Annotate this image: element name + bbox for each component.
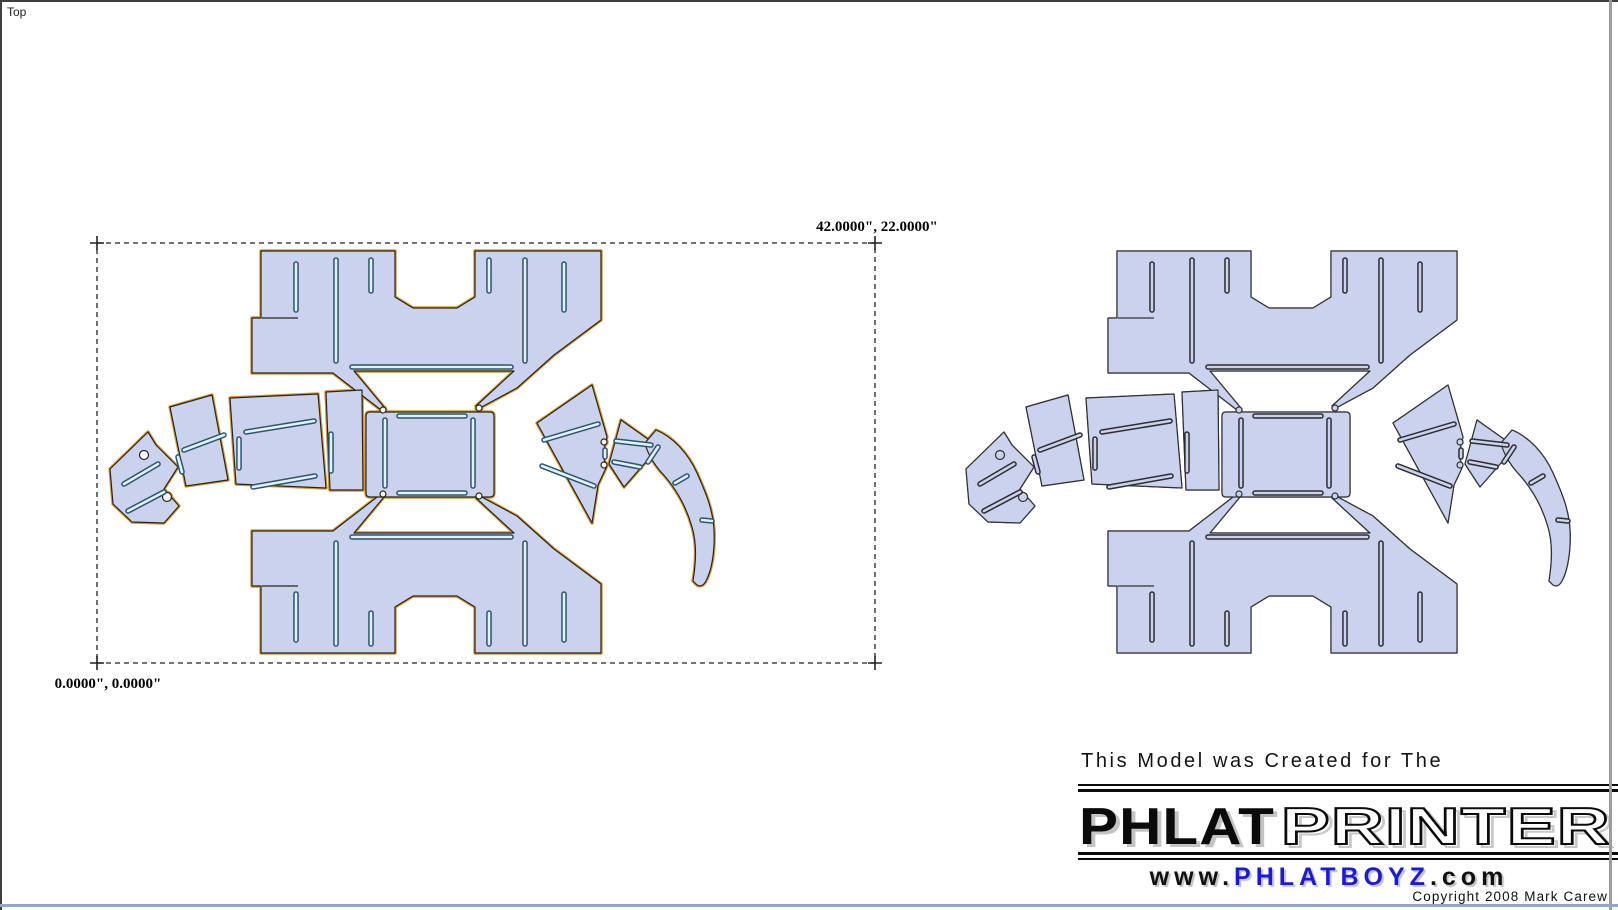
selection-corner-marker — [868, 236, 882, 250]
selection-corner-marker — [90, 656, 104, 670]
viewport: Top — [0, 0, 1618, 910]
frame-edge-bottom — [0, 904, 1618, 907]
model-left-faces — [110, 251, 714, 653]
model-copy-right[interactable] — [966, 251, 1570, 653]
frame-edge-right — [1609, 0, 1612, 910]
selection-corner-marker — [868, 656, 882, 670]
frame-edge-left — [0, 0, 2, 910]
drawing-area: 42.0000", 22.0000" 0.0000", 0.0000" — [0, 0, 1618, 910]
model-copy-left[interactable] — [110, 251, 714, 653]
model-right-faces — [966, 251, 1570, 653]
selection-corner-marker — [90, 236, 104, 250]
selection-origin-label: 0.0000", 0.0000" — [55, 676, 162, 692]
frame-edge-top — [0, 0, 1618, 2]
selection-extent-label: 42.0000", 22.0000" — [816, 219, 938, 235]
